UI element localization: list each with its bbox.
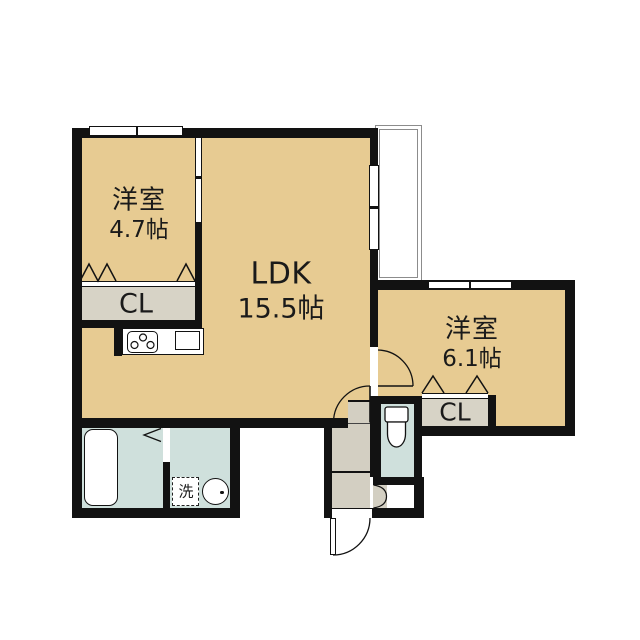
sliding-door-handle (195, 176, 202, 179)
wall-segment (114, 328, 122, 356)
balcony (375, 125, 422, 282)
balcony-railing (379, 129, 418, 278)
wall-segment (72, 320, 202, 328)
wall-segment (373, 396, 422, 404)
entry-hall-floor (332, 428, 348, 508)
entry-door-leaf (330, 518, 336, 555)
hall-floor-edge (348, 423, 370, 424)
closet1-label: CL (119, 289, 153, 320)
wall-segment (72, 508, 240, 518)
entry-hall-floor (373, 485, 387, 508)
bathroom-door-opening (163, 428, 170, 462)
shoe-cabinet (387, 485, 414, 508)
window-mullion (136, 126, 138, 136)
sliding-door (195, 138, 202, 222)
genkan-step-line (332, 471, 370, 473)
laundry-label: 洗 (178, 481, 193, 502)
bathtub (84, 429, 118, 506)
wall-segment (414, 426, 575, 436)
hall-door-threshold (348, 400, 370, 402)
entry-door-opening (332, 508, 372, 518)
toilet-room-floor (381, 404, 414, 477)
basin-drain-dot (220, 491, 224, 495)
wall-segment (414, 396, 422, 485)
hallway-floor (348, 402, 370, 508)
stove-icon (127, 331, 158, 353)
kitchen-sink-icon (175, 331, 200, 350)
entry-door-swing-arc (333, 518, 370, 555)
wall-segment (565, 280, 575, 436)
window-mullion (369, 206, 379, 209)
closet2-label: CL (439, 398, 470, 427)
bedroom2-door-opening (370, 347, 378, 396)
wash-basin-icon (202, 478, 229, 505)
bedroom2-size-label: 6.1帖 (442, 339, 502, 373)
floorplan: 洋室 4.7帖 LDK 15.5帖 洋室 6.1帖 CL CL 洗 (0, 0, 640, 640)
wall-segment (324, 418, 332, 518)
wall-segment (488, 395, 496, 426)
wall-segment (72, 418, 348, 428)
ldk-size-label: 15.5帖 (237, 287, 324, 326)
wall-segment (230, 418, 240, 518)
bedroom1-size-label: 4.7帖 (109, 210, 169, 244)
window-mullion (469, 281, 471, 289)
